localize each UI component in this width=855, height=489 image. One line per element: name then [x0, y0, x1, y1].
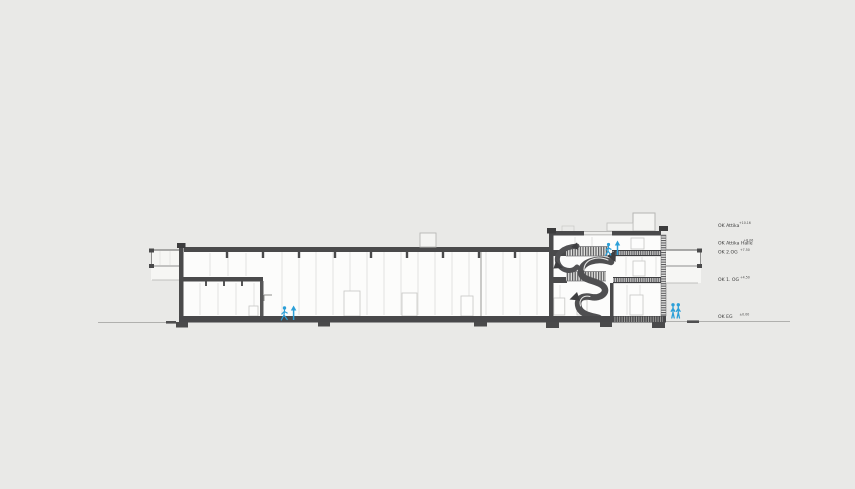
level-label-1og: OK 1. OG — [718, 277, 740, 283]
stair-block-right-parapet — [659, 226, 668, 231]
ground-mark-right — [687, 320, 699, 323]
stair-block-left-parapet — [547, 228, 556, 234]
ground-mark-left — [166, 321, 176, 324]
stair-block-right-wall — [661, 235, 666, 316]
standing-person-pair-icon — [671, 303, 680, 318]
mezzanine-slab — [183, 277, 263, 282]
hall-rooftop-unit — [420, 233, 436, 247]
stair-block-inner-wall — [610, 283, 614, 316]
level-value-attika: +10.16 — [739, 221, 751, 225]
ground-floor-slab — [179, 316, 666, 323]
hall-interior — [183, 251, 552, 316]
level-value-eg: ±0.00 — [740, 313, 750, 317]
foundation-pads — [176, 322, 665, 328]
hall-left-wall — [179, 247, 184, 316]
stair-block-left-wall — [549, 233, 554, 316]
level-value-1og: +4.50 — [740, 276, 750, 280]
roof-skylight — [584, 231, 612, 236]
mezzanine-end-wall — [260, 281, 264, 316]
level-label-attika: OK Attika — [718, 223, 740, 229]
level-label-eg: OK EG — [718, 314, 733, 320]
rooftop-structures — [562, 213, 655, 232]
building-section-svg: OK Attika +10.16 OK Attika Halle +8.06 O… — [0, 0, 855, 489]
hall-roof-slab — [184, 247, 552, 252]
level-annotations: OK Attika +10.16 OK Attika Halle +8.06 O… — [718, 221, 753, 320]
right-canopy — [666, 249, 702, 284]
level-value-attika-halle: +8.06 — [744, 239, 754, 243]
section-drawing-canvas: OK Attika +10.16 OK Attika Halle +8.06 O… — [0, 0, 855, 489]
ground-floor-slab-hatch — [614, 317, 663, 323]
level-value-2og: +7.50 — [740, 248, 750, 252]
left-canopy — [149, 249, 179, 281]
hall-left-parapet — [177, 243, 186, 248]
level-label-2og: OK 2.OG — [718, 250, 738, 256]
